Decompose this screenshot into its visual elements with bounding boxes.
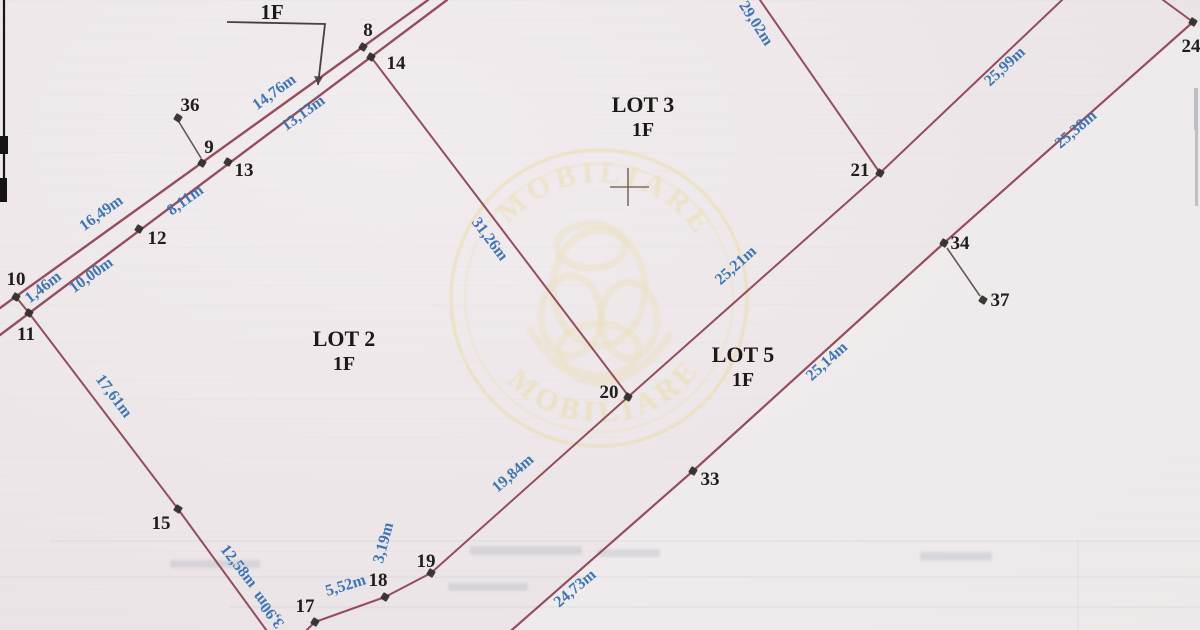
distance-label: 5,52m <box>323 571 368 600</box>
boundary-line <box>29 313 178 509</box>
point-number-label: 24 <box>1182 36 1200 57</box>
point-number-label: 19 <box>417 551 436 572</box>
distance-label: 25,21m <box>712 242 761 288</box>
scan-edge-artifact <box>1194 88 1198 130</box>
distance-label: 31,26m <box>468 214 512 264</box>
distance-label: 10,00m <box>66 254 116 297</box>
point-number-label: 9 <box>204 137 214 158</box>
distance-label: 14,76m <box>249 71 299 114</box>
point-number-label: 12 <box>148 228 167 249</box>
floor-note-bracket <box>227 22 325 85</box>
point-number-label: 33 <box>701 469 720 490</box>
distance-label: 25,99m <box>981 43 1029 90</box>
point-number-label: 18 <box>369 570 388 591</box>
point-number-label: 36 <box>181 95 200 116</box>
distance-label: 3,19m <box>370 520 397 565</box>
plan-canvas: IMOBILIAREIMOBILIARE1FLOT 31FLOT 21FLOT … <box>0 0 1200 630</box>
boundary-line <box>283 622 315 630</box>
leader-line <box>179 122 201 158</box>
bleed-through-text-smudge <box>920 552 992 561</box>
bleed-through-text-smudge <box>598 549 660 557</box>
boundary-line <box>760 0 880 173</box>
scanned-lot-plan: IMOBILIAREIMOBILIARE1FLOT 31FLOT 21FLOT … <box>0 0 1200 630</box>
point-number-label: 17 <box>296 596 316 617</box>
point-number-label: 15 <box>152 513 171 534</box>
boundary-line <box>880 0 1062 173</box>
scan-edge-artifact <box>0 136 8 154</box>
distance-label: 3,90m <box>249 588 288 630</box>
lot-label: LOT 21F <box>313 326 376 375</box>
floor-note-label: 1F <box>260 0 283 24</box>
boundary-line <box>315 597 385 622</box>
watermark-emblem-shape <box>601 282 657 358</box>
boundary-line <box>1163 0 1193 22</box>
point-number-label: 11 <box>17 324 35 345</box>
bleed-through-text-smudge <box>470 546 582 555</box>
point-number-label: 10 <box>7 269 26 290</box>
survey-point-marker <box>380 592 390 602</box>
scan-edge-artifact <box>1195 130 1198 206</box>
distance-label: 8,11m <box>164 181 207 219</box>
distance-label: 13,13m <box>278 92 328 135</box>
distance-label: 29,02m <box>735 0 776 49</box>
point-number-label: 14 <box>387 53 407 74</box>
point-number-label: 20 <box>600 382 619 403</box>
point-number-label: 21 <box>851 160 870 181</box>
point-number-label: 8 <box>363 20 373 41</box>
scan-edge-artifact <box>0 178 7 202</box>
point-number-label: 34 <box>951 233 971 254</box>
bleed-through-text-smudge <box>448 583 528 591</box>
point-number-label: 37 <box>991 290 1011 311</box>
watermark-emblem-shape <box>541 276 601 356</box>
point-number-label: 13 <box>235 160 254 181</box>
lot-label: LOT 31F <box>612 92 675 141</box>
distance-label: 16,49m <box>76 192 126 235</box>
distance-label: 17,61m <box>92 371 136 421</box>
distance-label: 19,84m <box>489 451 538 497</box>
